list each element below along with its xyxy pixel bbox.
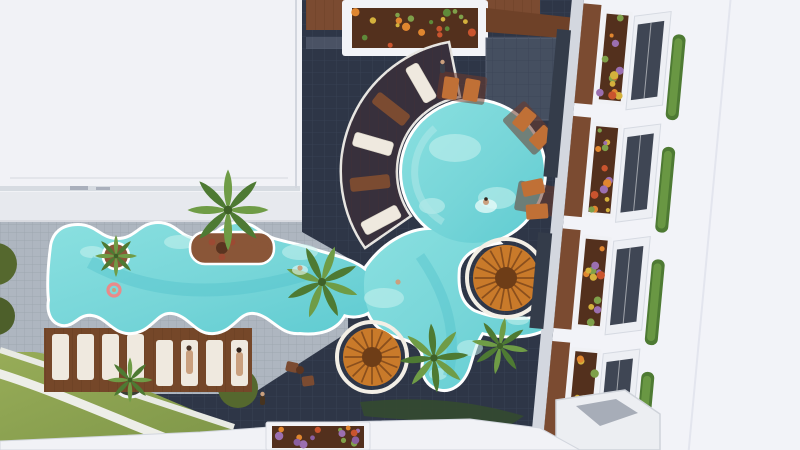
roof-vent xyxy=(96,187,110,190)
flower xyxy=(429,20,433,24)
sun-lounger xyxy=(77,334,94,380)
flower xyxy=(402,23,410,31)
flower xyxy=(275,432,283,440)
flower xyxy=(278,427,284,433)
flower xyxy=(362,35,368,41)
flower xyxy=(388,43,393,48)
flower xyxy=(408,15,414,21)
platform-chair xyxy=(219,254,226,261)
flower xyxy=(341,438,346,443)
cafe-chair xyxy=(301,375,314,387)
sunbather xyxy=(186,350,193,374)
flower xyxy=(441,17,446,22)
person-walking xyxy=(440,64,445,73)
sun-lounger xyxy=(156,340,173,386)
flower xyxy=(294,439,301,446)
flower xyxy=(463,19,468,24)
roof-bottom-edge xyxy=(0,186,300,191)
orange-lounger xyxy=(526,203,549,219)
sunbather-head xyxy=(236,347,241,352)
sun-lounger xyxy=(206,340,223,386)
person-walking xyxy=(260,396,265,405)
flower xyxy=(468,29,476,37)
sunbather-head xyxy=(186,345,191,350)
flower xyxy=(437,32,442,37)
palm-tree xyxy=(108,358,153,403)
flower xyxy=(351,430,358,437)
swimmer xyxy=(395,279,400,284)
scene-canvas xyxy=(0,0,800,450)
flower xyxy=(453,9,458,14)
swimmer xyxy=(112,288,116,292)
person-head xyxy=(260,392,264,396)
main-building-roof xyxy=(0,0,302,222)
flower-planter-bottom xyxy=(272,426,364,449)
flower xyxy=(445,26,450,31)
lounger-deck xyxy=(44,328,252,392)
platform-chair xyxy=(209,239,216,246)
flower xyxy=(396,17,402,23)
flower xyxy=(436,26,442,32)
flower xyxy=(418,29,425,36)
palm-tree xyxy=(188,170,269,251)
swimmer-head xyxy=(484,197,488,201)
parasol-core xyxy=(362,347,382,367)
flower xyxy=(339,430,346,437)
flower xyxy=(346,426,351,431)
flower xyxy=(310,435,315,440)
parasol-core xyxy=(495,267,517,289)
sunbather xyxy=(236,352,243,376)
residential-facade xyxy=(512,0,800,450)
sun-lounger xyxy=(102,334,119,380)
flower xyxy=(396,23,400,27)
roof-slab xyxy=(0,0,302,192)
water-highlight xyxy=(429,134,481,162)
cafe-table xyxy=(296,366,304,374)
flower xyxy=(315,427,321,433)
flower xyxy=(459,15,464,20)
roof-vent xyxy=(70,186,88,190)
flower xyxy=(395,13,400,18)
flower xyxy=(370,17,376,23)
planter-soil xyxy=(352,8,478,48)
palm-tree xyxy=(95,235,137,277)
water-highlight xyxy=(364,288,404,308)
sun-lounger xyxy=(52,334,69,380)
person-head xyxy=(440,60,444,64)
swimmer xyxy=(297,265,302,270)
roof-walkway xyxy=(0,188,302,222)
flower xyxy=(443,9,451,17)
aerial-resort-pool-view xyxy=(0,0,800,450)
flower-planter-top xyxy=(351,8,478,48)
flower xyxy=(352,436,360,444)
flower xyxy=(351,8,359,16)
orange-lounger xyxy=(442,76,460,100)
